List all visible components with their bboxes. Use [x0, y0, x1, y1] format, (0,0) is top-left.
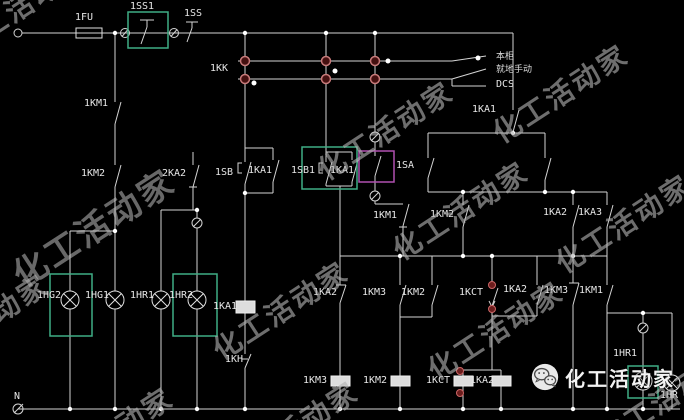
label-contact-1km2-bot: 1KM2 [401, 288, 425, 298]
label-contact-1km2-left: 1KM2 [81, 169, 105, 179]
label-lamp-1hg2: 1HG2 [37, 291, 61, 301]
label-contact-1ka2-bot: 1KA2 [503, 285, 527, 295]
label-contact-1km2-mid: 1KM2 [430, 210, 454, 220]
switch-1ss-symbol [186, 22, 198, 42]
label-coil-1km2: 1KM2 [363, 376, 387, 386]
label-position-local: 就地手动 [496, 65, 532, 75]
label-contact-1ka1-top: 1KA1 [472, 105, 496, 115]
label-lamp-1hr2: 1HR2 [169, 291, 193, 301]
label-coil-1kct: 1KCT [426, 376, 450, 386]
label-neutral-n: N [14, 392, 20, 402]
schematic-canvas: 1FU 1SS1 1SS 1KK 本柜 就地手动 DCS 1KA1 1KM1 1… [0, 0, 684, 420]
label-contact-1kct: 1KCT [459, 288, 483, 298]
label-coil-1ka1: 1KA1 [213, 302, 237, 312]
label-contact-1ka1-b: 1KA1 [330, 166, 354, 176]
line-terminal [14, 29, 22, 37]
label-position-cabinet: 本柜 [496, 52, 514, 62]
label-contact-2ka2: 2KA2 [162, 169, 186, 179]
wire-segments [18, 33, 680, 409]
label-position-dcs: DCS [496, 80, 514, 90]
label-switch-1sa: 1SA [396, 161, 414, 171]
label-coil-1ka2: 1KA2 [470, 376, 494, 386]
label-contact-1ka2-nc: 1KA2 [313, 288, 337, 298]
label-fuse: 1FU [75, 13, 93, 23]
magenta-highlight-box [359, 151, 394, 182]
label-lamp-1hg1: 1HG1 [85, 291, 109, 301]
wechat-icon [529, 361, 561, 393]
label-switch-1ss: 1SS [184, 9, 202, 19]
label-selector-1kk: 1KK [210, 64, 228, 74]
label-contact-1km1-right: 1KM1 [579, 286, 603, 296]
label-contact-1ka3: 1KA3 [578, 208, 602, 218]
label-contact-1km3-nc: 1KM3 [544, 286, 568, 296]
label-lamp-1hr1-right: 1HR1 [613, 349, 637, 359]
label-contact-1km1-left: 1KM1 [84, 99, 108, 109]
label-contact-1km1-mid: 1KM1 [373, 211, 397, 221]
switch-1ss1-symbol [140, 20, 154, 44]
label-contact-1ka2-right: 1KA2 [543, 208, 567, 218]
label-lamp-1hr1: 1HR1 [130, 291, 154, 301]
label-contact-1ka1-a: 1KA1 [248, 166, 272, 176]
junction-dots [68, 31, 645, 411]
label-button-1sb: 1SB [215, 168, 233, 178]
label-thermal-1kh: 1KH [225, 355, 243, 365]
label-contact-1km3-mid: 1KM3 [362, 288, 386, 298]
brand-badge: 化工活动家 [529, 361, 675, 393]
brand-text: 化工活动家 [565, 363, 675, 392]
relay-coils [236, 301, 511, 386]
label-coil-1km3: 1KM3 [303, 376, 327, 386]
green-highlight-boxes [50, 12, 658, 398]
label-button-1sb1: 1SB1 [291, 166, 315, 176]
label-switch-1ss1: 1SS1 [130, 2, 154, 12]
